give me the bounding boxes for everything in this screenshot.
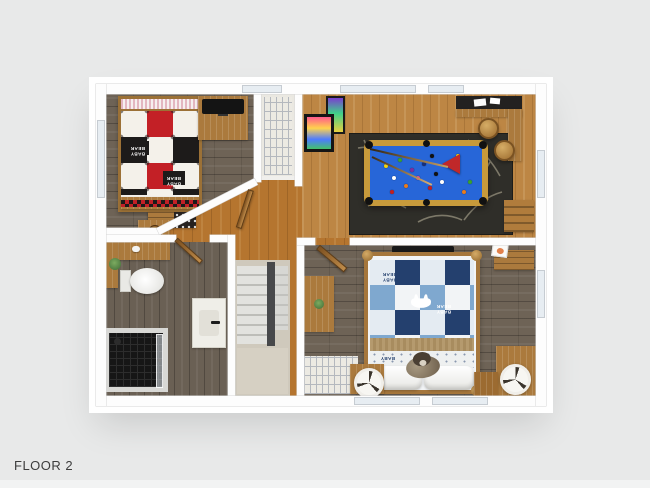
window-left-bedroom1: [97, 120, 105, 198]
bed2-quilt: BABY BEAR BABY BEAR: [370, 260, 474, 338]
faucet: [211, 321, 220, 324]
bed2-burlap-band: [370, 338, 474, 351]
stairwell: [235, 260, 290, 396]
stairs-upper-flight: [275, 266, 288, 330]
wall-bedroom2-north-right: [350, 238, 536, 245]
bar-counter-top: [456, 96, 522, 109]
bar-papers: [474, 98, 487, 106]
ladder-shelf: [504, 200, 534, 232]
door-handle: [158, 359, 161, 362]
quilt-label: BABY BEAR: [167, 176, 181, 187]
bar-stool: [494, 140, 515, 161]
bed1-quilt: BABY BEAR BABY BEAR: [121, 111, 199, 195]
quilt-label: BABY BEAR: [437, 304, 451, 315]
wall-bathroom-north-left: [106, 235, 176, 242]
pocket-top-mid: [423, 140, 430, 147]
tv-monitor: [202, 99, 244, 114]
pinball-playfield: [307, 117, 331, 149]
pocket-bottom-right: [479, 197, 487, 205]
moose-silhouette: [408, 292, 434, 310]
shower: [104, 328, 168, 392]
bed1-headboard-textile: [121, 99, 199, 111]
floor-label: FLOOR 2: [14, 458, 73, 473]
shower-glass-door: [156, 334, 163, 388]
outer-wall-top: [96, 84, 546, 94]
toilet: [120, 268, 164, 294]
bedroom1-bed: BABY BEAR BABY BEAR: [118, 96, 202, 212]
bathroom-vanity: [192, 298, 226, 348]
bed1-foot-bench: [121, 197, 199, 209]
toilet-bowl: [130, 268, 164, 294]
window-bottom-bedroom2-2: [432, 397, 488, 405]
toilet-paper-roll: [132, 246, 140, 252]
bar-stool: [478, 118, 499, 139]
bedroom2-desk: [304, 276, 334, 332]
bench-plaid-throw: [121, 200, 199, 207]
closet-wire-shelf: [264, 97, 292, 175]
quilt-label: BABY BEAR: [383, 272, 397, 283]
pool-table: [364, 140, 488, 206]
cue-stick: [370, 148, 448, 168]
quilt-label: BABY: [381, 356, 395, 361]
window-right-gameroom: [537, 150, 545, 198]
wall-stairwell-east: [297, 238, 304, 396]
closet-threshold: [261, 176, 295, 180]
wall-bathroom-east: [228, 235, 235, 396]
pocket-bottom-mid: [423, 199, 430, 206]
footer-strip: [0, 480, 650, 488]
stair-stringer: [267, 262, 275, 346]
window-bottom-bedroom2-1: [354, 397, 420, 405]
stairs-down-flight: [237, 266, 267, 344]
wall-bedroom2-north-left: [297, 238, 315, 245]
pocket-top-right: [479, 141, 487, 149]
bar-papers: [490, 98, 500, 105]
window-right-bedroom2: [537, 270, 545, 318]
window-top-gameroom-1: [340, 85, 416, 93]
drum-lamp: [500, 364, 531, 395]
wall-bedroom1-closet: [254, 94, 261, 182]
desk-plant: [314, 299, 324, 309]
corner-step: [474, 372, 498, 396]
drum-lamp: [354, 368, 384, 398]
pinball-machine: [304, 114, 334, 152]
window-top-gameroom-2: [428, 85, 464, 93]
wall-closet-gameroom: [295, 94, 302, 186]
pocket-bottom-left: [365, 197, 373, 205]
dog-on-bed: [402, 351, 443, 382]
monitor-stand: [218, 114, 228, 116]
floorplan-canvas[interactable]: BABY BEAR BABY BEAR: [96, 84, 546, 406]
quilt-text-square: BABY BEAR: [127, 141, 149, 155]
shower-head: [114, 338, 121, 345]
stair-landing: [237, 348, 288, 394]
bedroom1-desk: [198, 96, 248, 140]
outer-wall-right: [536, 84, 546, 406]
quilt-label: BABY BEAR: [131, 146, 145, 157]
window-top-closet: [242, 85, 282, 93]
wall-bedroom1-south: [106, 228, 160, 235]
billiard-rack-triangle: [442, 154, 460, 174]
floorplan-viewer: BABY BEAR BABY BEAR: [0, 0, 650, 488]
art-orange-dot: [496, 248, 504, 255]
quilt-text-square: BABY BEAR: [163, 171, 185, 185]
